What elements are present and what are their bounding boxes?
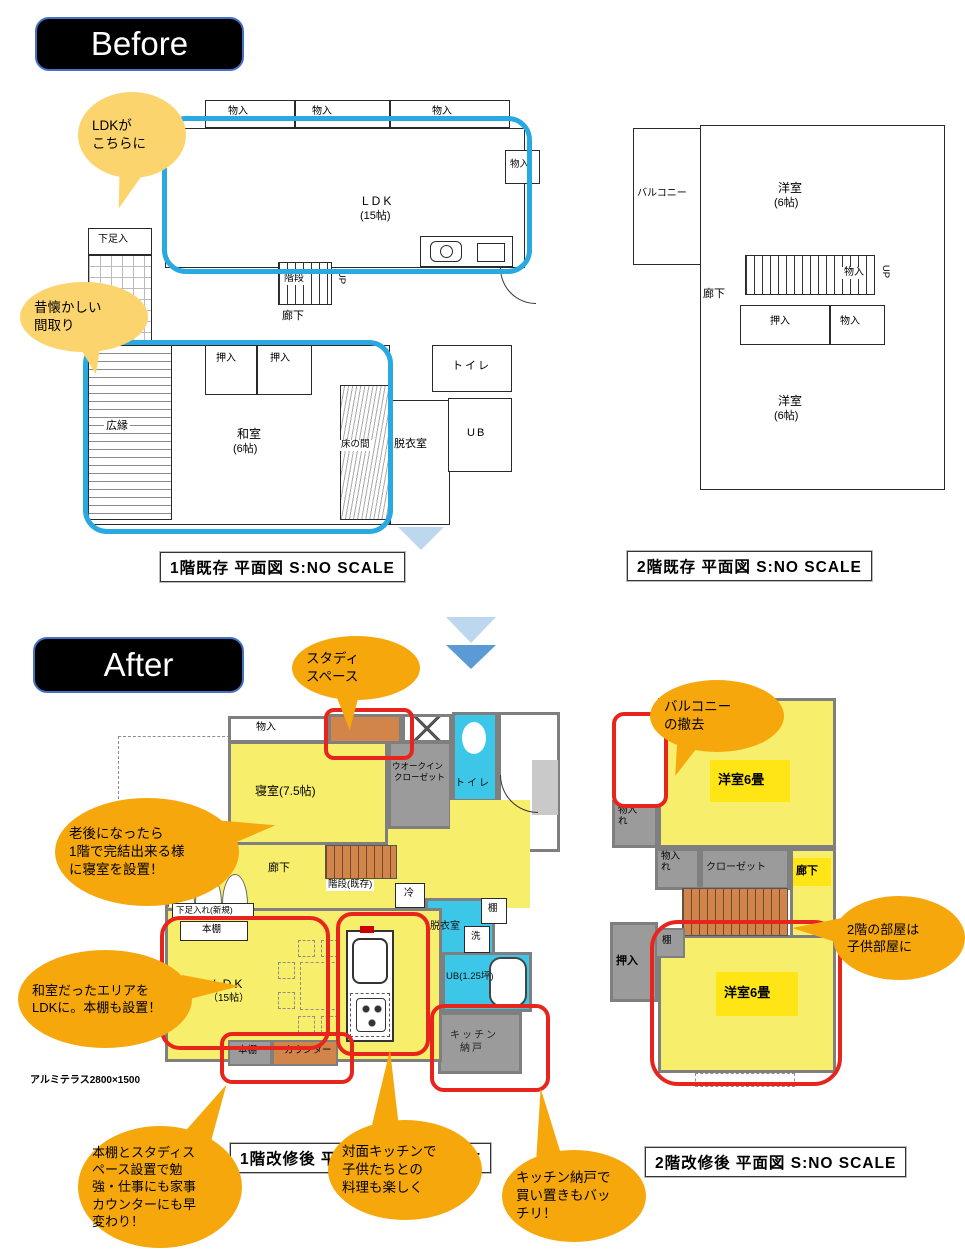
bubble-text: バルコニー xyxy=(664,698,731,716)
bathtub-icon xyxy=(489,957,527,1007)
speech-bubble-ldk: LDKが こちらに xyxy=(78,92,186,178)
bubble-text: 子供たちとの xyxy=(342,1161,423,1179)
bubble-tail xyxy=(532,1087,562,1157)
after-label: After xyxy=(33,637,244,693)
speech-bubble-taimen: 対面キッチンで 子供たちとの 料理も楽しく xyxy=(328,1120,482,1220)
bubble-text: 強・仕事にも家事 xyxy=(92,1178,196,1195)
balcony-label: バルコニー xyxy=(637,188,687,200)
speech-bubble-balcony: バルコニー の撤去 xyxy=(650,680,784,752)
shoe-cabinet-label: 下足入 xyxy=(98,234,128,246)
bubble-text: カウンターにも早 xyxy=(92,1196,196,1213)
after-label-text: After xyxy=(104,646,174,684)
bubble-text: の撤去 xyxy=(664,716,705,734)
laundry-label: 洗 xyxy=(471,932,481,943)
highlight-counter-red xyxy=(220,1032,354,1084)
hall-label: 廊下 xyxy=(282,310,304,323)
down-arrow-icon xyxy=(446,645,496,669)
toilet-label: トイレ xyxy=(452,360,491,373)
wic-label: ウオークイン xyxy=(392,762,443,772)
toilet-label: トイレ xyxy=(455,778,491,790)
ub-label: UB xyxy=(467,427,486,440)
caption-before-2f: 2階既存 平面図 S:NO SCALE xyxy=(627,551,872,581)
down-arrow-icon xyxy=(446,617,496,643)
bubble-text: 1階で完結出来る様 xyxy=(69,843,185,861)
highlight-ldk-blue xyxy=(162,116,532,274)
bubble-text: チリ！ xyxy=(516,1205,557,1223)
closet-label: クローゼット xyxy=(706,862,766,874)
oshiire-label: 押入 xyxy=(770,316,790,328)
shelf-label: 棚 xyxy=(488,904,498,915)
closet-label: 物入れ xyxy=(618,806,642,828)
speech-bubble-washitsu: 和室だったエリアを LDKに。本棚も設置！ xyxy=(18,950,192,1048)
caption-after-2f: 2階改修後 平面図 S:NO SCALE xyxy=(645,1147,906,1177)
ub-label: UB(1.25坪) xyxy=(446,972,494,983)
bubble-text: 子供部屋に xyxy=(847,938,912,955)
datsui-label: 脱衣室 xyxy=(430,921,460,933)
terrace-dimension-label: アルミテラス2800×1500 xyxy=(30,1075,140,1087)
speech-bubble-kodomo: 2階の部屋は 子供部屋に xyxy=(833,896,965,980)
speech-bubble-pantry: キッチン納戸で 買い置きもバッ チリ！ xyxy=(502,1150,646,1242)
bubble-text: スペース xyxy=(306,668,358,686)
speech-bubble-rougo: 老後になったら 1階で完結出来る様 に寝室を設置！ xyxy=(55,798,239,906)
bubble-text: 料理も楽しく xyxy=(342,1179,423,1197)
stairs xyxy=(325,845,397,879)
bubble-text: 対面キッチンで xyxy=(342,1143,437,1161)
highlight-washitsu-blue xyxy=(83,340,393,534)
hall-label: 廊下 xyxy=(703,288,725,301)
highlight-pantry-red xyxy=(430,1004,550,1092)
room-label: 洋室 xyxy=(778,182,802,196)
bedroom-label: 寝室(7.5帖) xyxy=(255,785,316,799)
room-size-label: (6帖) xyxy=(774,410,798,423)
closet-label: 物入れ xyxy=(661,852,685,874)
shoe-cabinet-label: 下足入れ(新規) xyxy=(176,906,233,916)
before-label-text: Before xyxy=(91,25,188,63)
hall-label: 廊下 xyxy=(796,865,818,878)
speech-bubble-natsukashii: 昔懐かしい 間取り xyxy=(20,282,148,352)
room-size-label: (6帖) xyxy=(774,197,798,210)
bubble-text: 昔懐かしい xyxy=(34,299,102,317)
speech-bubble-hondana: 本棚とスタディス ペース設置で勉 強・仕事にも家事 カウンターにも早 変わり！ xyxy=(78,1126,242,1248)
wic-label: クローゼット xyxy=(394,773,445,783)
closet-label: 物入 xyxy=(256,722,276,734)
bubble-text: LDKに。本棚も設置！ xyxy=(32,999,161,1016)
bubble-text: 本棚とスタディス xyxy=(92,1144,195,1161)
before-label: Before xyxy=(35,17,244,71)
speech-bubble-study: スタディ スペース xyxy=(292,636,420,700)
hall-label: 廊下 xyxy=(268,862,290,875)
fridge-label: 冷 xyxy=(404,888,414,900)
bubble-text: 和室だったエリアを xyxy=(32,982,149,999)
down-arrow-icon xyxy=(398,527,444,550)
oshiire-label: 押入 xyxy=(616,955,638,968)
highlight-kids-room-red xyxy=(650,920,842,1086)
renovation-before-after-diagram: Before 物入 物入 物入 LDK (15帖) 物入 下足入 階段 UP 廊… xyxy=(0,0,965,1260)
caption-before-1f: 1階既存 平面図 S:NO SCALE xyxy=(160,552,405,582)
up-label: UP xyxy=(879,265,890,278)
bubble-text: キッチン納戸で xyxy=(516,1169,611,1187)
datsui-label: 脱衣室 xyxy=(394,438,427,451)
highlight-study-red xyxy=(324,708,414,760)
bubble-text: ペース設置で勉 xyxy=(92,1161,182,1178)
closet-label: 物入 xyxy=(842,267,866,279)
bubble-text: に寝室を設置！ xyxy=(69,861,164,879)
stairs-label: 階段(既存) xyxy=(326,880,374,891)
bubble-text: 買い置きもバッ xyxy=(516,1187,611,1205)
closet-room xyxy=(228,716,330,743)
room-label: 洋室 xyxy=(778,395,802,409)
bubble-text: 間取り xyxy=(34,317,75,335)
datsui-room xyxy=(390,400,450,525)
bubble-text: 2階の部屋は xyxy=(847,921,919,938)
bubble-text: スタディ xyxy=(306,650,359,668)
bubble-text: 変わり！ xyxy=(92,1213,144,1230)
toilet-icon xyxy=(462,722,486,754)
closet-label: 物入 xyxy=(840,316,860,328)
stairs-label: 階段 xyxy=(282,273,306,285)
bubble-text: 老後になったら xyxy=(69,825,164,843)
bubble-text: LDKが xyxy=(92,117,132,135)
room-label: 洋室6畳 xyxy=(718,773,764,788)
bubble-text: こちらに xyxy=(92,135,146,153)
